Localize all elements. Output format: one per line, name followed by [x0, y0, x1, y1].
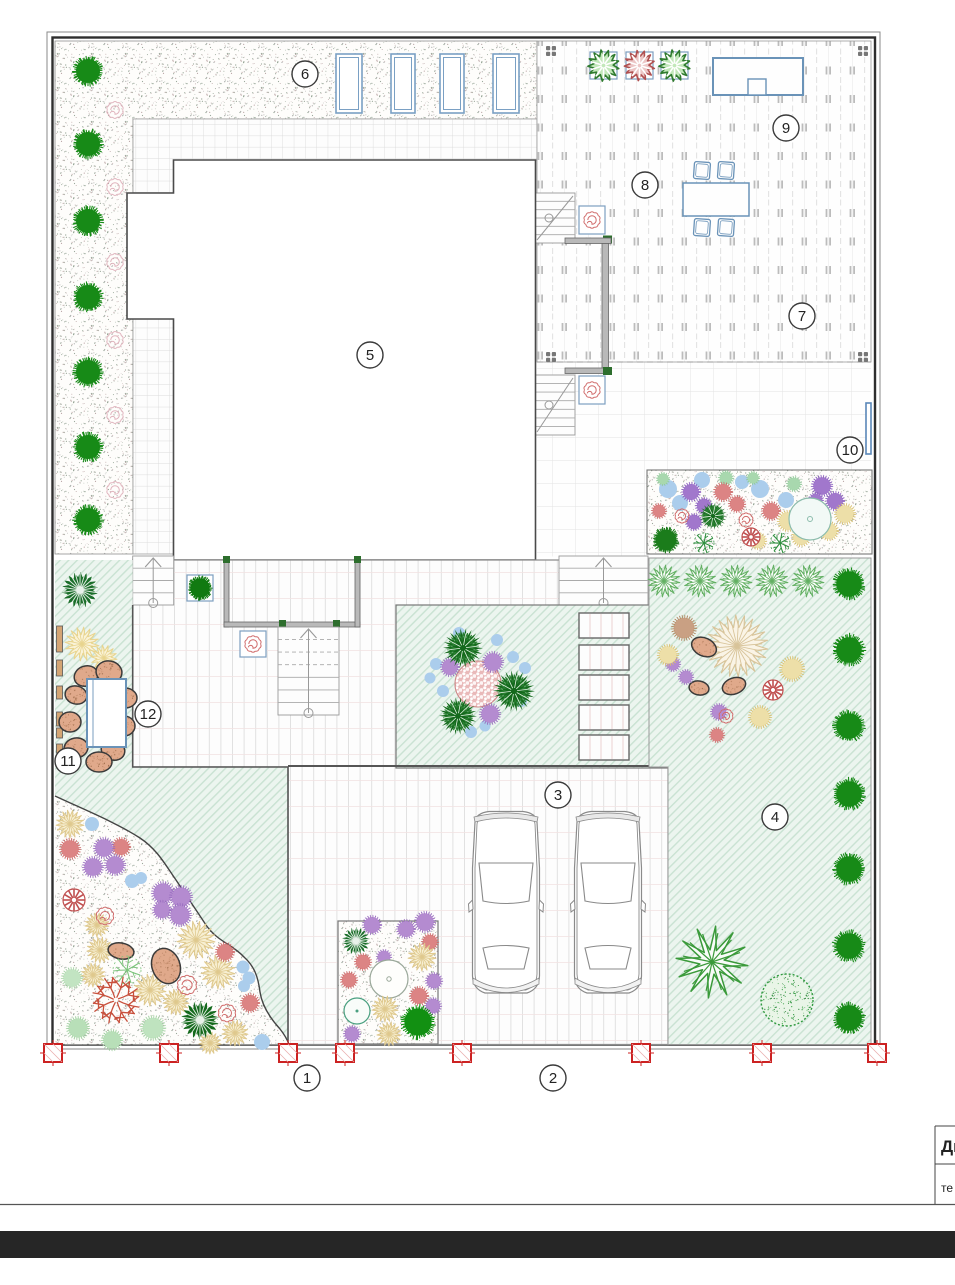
svg-text:1: 1: [303, 1070, 311, 1087]
svg-text:Ди: Ди: [941, 1137, 955, 1156]
svg-text:2: 2: [549, 1070, 557, 1087]
svg-text:5: 5: [366, 347, 374, 364]
svg-text:11: 11: [60, 753, 76, 770]
svg-text:те: те: [941, 1181, 953, 1195]
svg-text:4: 4: [771, 809, 779, 826]
svg-text:3: 3: [554, 787, 562, 804]
svg-text:6: 6: [301, 66, 309, 83]
svg-text:12: 12: [140, 706, 157, 723]
svg-text:9: 9: [782, 120, 790, 137]
svg-text:7: 7: [798, 308, 806, 325]
svg-text:10: 10: [842, 442, 859, 459]
svg-text:8: 8: [641, 177, 649, 194]
